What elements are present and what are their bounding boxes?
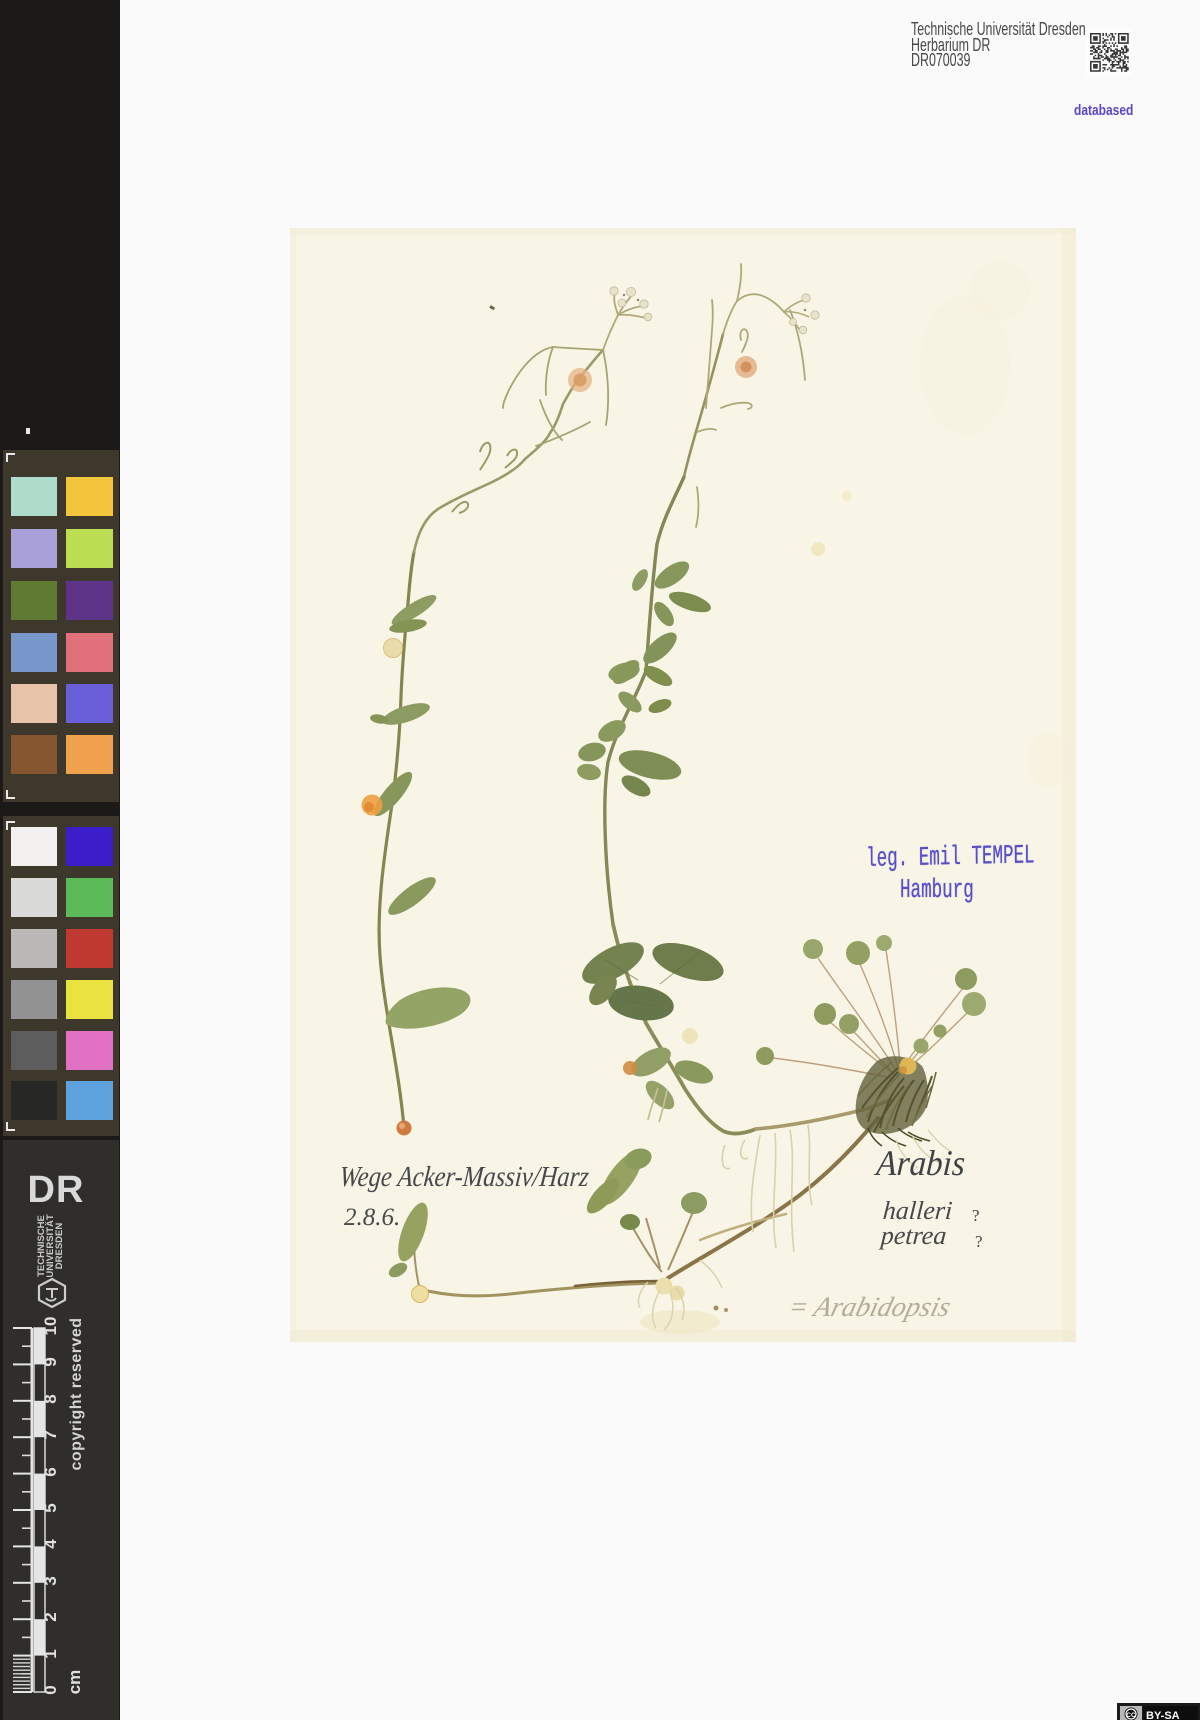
svg-text:5: 5 xyxy=(41,1503,60,1512)
svg-text:1: 1 xyxy=(41,1649,60,1658)
svg-text:cm: cm xyxy=(65,1670,84,1695)
svg-text:DRESDEN: DRESDEN xyxy=(54,1223,65,1270)
svg-text:6: 6 xyxy=(41,1467,60,1476)
svg-text:10: 10 xyxy=(41,1317,60,1336)
svg-text:BY-SA: BY-SA xyxy=(1146,1710,1180,1720)
svg-text:4: 4 xyxy=(41,1539,60,1549)
svg-text:7: 7 xyxy=(41,1430,60,1439)
svg-text:copyright reserved: copyright reserved xyxy=(68,1317,85,1470)
svg-text:2: 2 xyxy=(41,1612,60,1621)
svg-text:9: 9 xyxy=(41,1357,60,1366)
svg-text:CC: CC xyxy=(1126,1712,1136,1719)
svg-text:0: 0 xyxy=(41,1685,60,1694)
svg-text:8: 8 xyxy=(41,1394,60,1403)
svg-text:3: 3 xyxy=(41,1576,60,1585)
svg-text:DR: DR xyxy=(28,1169,85,1211)
